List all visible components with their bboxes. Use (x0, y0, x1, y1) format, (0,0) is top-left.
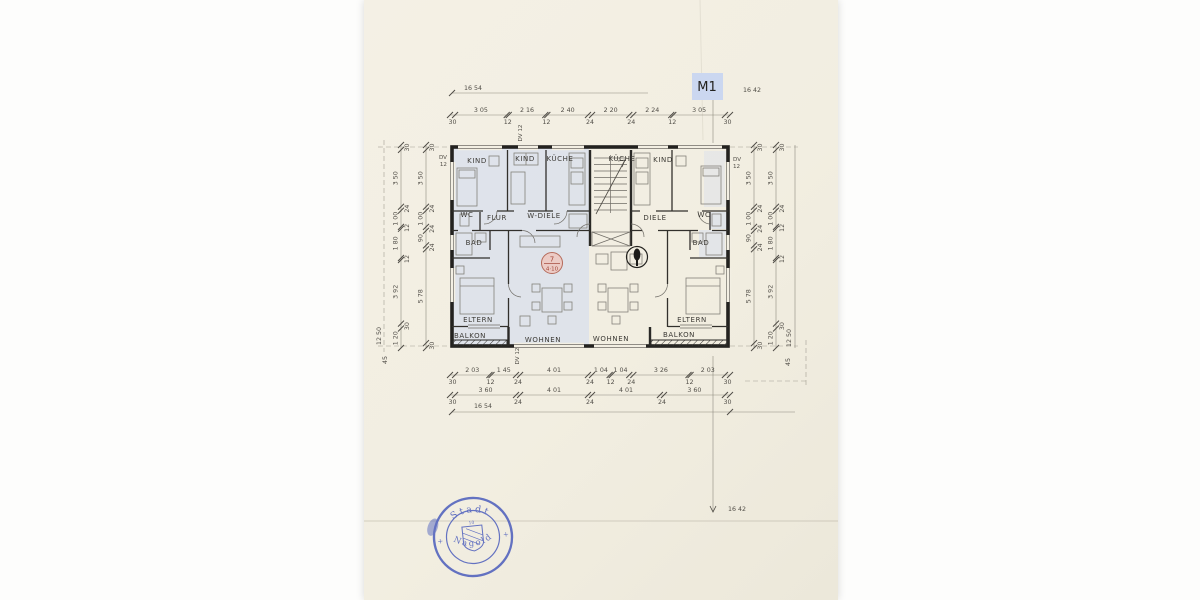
room-label-diele-right: DIELE (643, 214, 666, 222)
svg-text:24: 24 (586, 399, 594, 406)
svg-text:3 50: 3 50 (393, 171, 400, 185)
svg-text:3 50: 3 50 (746, 171, 753, 185)
room-label-wdiele-left: W-DIELE (527, 212, 561, 220)
svg-text:24: 24 (404, 205, 411, 213)
city-stamp: Stadt Nagold + + 10 (422, 494, 516, 581)
svg-text:Stadt: Stadt (448, 502, 493, 523)
room-label-balkon-left: BALKON (454, 332, 486, 340)
room-label-kueche-left: KÜCHE (546, 154, 573, 163)
svg-text:1 00: 1 00 (393, 212, 400, 226)
dim-side-edge-left: 45 (382, 356, 389, 364)
svg-text:24: 24 (627, 379, 635, 386)
dim-side-edge-right: 45 (785, 358, 792, 366)
room-label-kueche-right: KÜCHE (608, 154, 635, 163)
svg-text:Nagold: Nagold (451, 531, 496, 551)
svg-text:24: 24 (757, 243, 764, 251)
room-label-kind2-left: KIND (515, 155, 535, 163)
svg-text:30: 30 (779, 143, 786, 151)
dv-label-right: DV (733, 157, 741, 163)
svg-text:24: 24 (757, 225, 764, 233)
svg-text:3 50: 3 50 (768, 171, 775, 185)
svg-text:3 50: 3 50 (418, 171, 425, 185)
svg-text:3 92: 3 92 (393, 285, 400, 299)
stamp-top-text: Stadt (448, 502, 493, 523)
svg-text:30: 30 (429, 342, 436, 350)
svg-text:4 01: 4 01 (547, 387, 561, 394)
svg-text:3 05: 3 05 (692, 107, 706, 114)
svg-text:1 00: 1 00 (768, 212, 775, 226)
svg-text:24: 24 (429, 205, 436, 213)
room-label-bad-right: BAD (693, 239, 710, 247)
svg-text:30: 30 (449, 379, 457, 386)
room-label-wc-left: WC (460, 211, 473, 219)
plan-scale-label: M1 (697, 80, 717, 95)
scanned-floor-plan-page: { "plan_label": "M1", "colors": { "paper… (0, 0, 1200, 600)
room-label-eltern-right: ELTERN (677, 316, 707, 324)
unit-number-left: 7 (550, 256, 554, 264)
svg-text:1 00: 1 00 (418, 212, 425, 226)
svg-text:3 60: 3 60 (479, 387, 493, 394)
room-label-eltern-left: ELTERN (463, 316, 493, 324)
svg-text:1 80: 1 80 (768, 236, 775, 250)
svg-text:2 20: 2 20 (604, 107, 618, 114)
svg-text:24: 24 (779, 205, 786, 213)
dim-chain-bottom-1: 302 03121 45244 01241 04121 04243 26122 … (447, 367, 733, 386)
floor-plan-drawing: KIND KIND KÜCHE WC FLUR W-DIELE BAD ELTE… (0, 0, 1200, 600)
room-label-wc-right: WC (697, 211, 710, 219)
svg-text:5 78: 5 78 (746, 289, 753, 303)
dim-chain-left-outer: 303 50241 00121 80123 92301 20 (393, 142, 412, 351)
dim-bottom-overall-right: 16 42 (728, 506, 746, 513)
svg-text:3 26: 3 26 (654, 367, 668, 374)
construction-lines (378, 140, 806, 386)
svg-text:1 45: 1 45 (497, 367, 511, 374)
svg-text:12: 12 (440, 162, 447, 168)
svg-text:30: 30 (404, 143, 411, 151)
svg-text:30: 30 (449, 399, 457, 406)
dim-bottom-overall: 16 54 (474, 403, 492, 410)
svg-text:2 24: 2 24 (645, 107, 659, 114)
dim-top-overall-left: 16 54 (464, 85, 482, 92)
svg-text:30: 30 (429, 143, 436, 151)
room-label-kind-right: KIND (653, 156, 673, 164)
svg-text:30: 30 (723, 399, 731, 406)
dv-label-bottom-center: DV 12 (515, 348, 521, 365)
room-label-wohnen-right: WOHNEN (593, 335, 629, 343)
svg-text:1 80: 1 80 (393, 236, 400, 250)
svg-text:24: 24 (514, 399, 522, 406)
svg-text:12: 12 (542, 119, 550, 126)
dim-chain-right-inner: 303 50241 002490245 7830 (746, 142, 765, 351)
svg-text:12: 12 (668, 119, 676, 126)
svg-text:30: 30 (757, 342, 764, 350)
dim-chain-left-inner: 303 50241 002490245 7830 (418, 142, 437, 351)
svg-text:12: 12 (779, 255, 786, 263)
svg-text:30: 30 (404, 322, 411, 330)
room-label-flur-left: FLUR (487, 214, 507, 222)
dim-side-overall-right: 12 50 (786, 329, 793, 347)
stamp-bottom-text: Nagold (451, 531, 496, 551)
unit-marker-left: 7 4·10 (542, 253, 563, 274)
svg-text:1 20: 1 20 (768, 331, 775, 345)
dim-top-overall-right: 16 42 (743, 87, 761, 94)
svg-text:2 03: 2 03 (465, 367, 479, 374)
dim-side-overall-left: 12 50 (376, 327, 383, 345)
svg-text:24: 24 (627, 119, 635, 126)
stamp-right-mark: + (503, 530, 510, 539)
svg-text:5 78: 5 78 (418, 289, 425, 303)
stamp-left-mark: + (437, 537, 444, 546)
svg-text:12: 12 (686, 379, 694, 386)
svg-text:12: 12 (404, 224, 411, 232)
unit-marker-figure (634, 249, 641, 261)
svg-text:30: 30 (757, 143, 764, 151)
dim-chain-right-outer: 303 50241 00121 80123 92301 20 (768, 142, 787, 351)
svg-text:12: 12 (404, 255, 411, 263)
svg-text:12: 12 (504, 119, 512, 126)
svg-text:3 92: 3 92 (768, 285, 775, 299)
svg-text:90: 90 (746, 234, 753, 242)
svg-text:2 03: 2 03 (701, 367, 715, 374)
dv-label-left: DV (439, 155, 447, 161)
svg-text:24: 24 (586, 379, 594, 386)
svg-text:30: 30 (723, 379, 731, 386)
svg-text:30: 30 (723, 119, 731, 126)
svg-text:24: 24 (429, 225, 436, 233)
svg-text:12: 12 (486, 379, 494, 386)
svg-text:4 01: 4 01 (547, 367, 561, 374)
svg-text:90: 90 (418, 234, 425, 242)
svg-text:30: 30 (779, 322, 786, 330)
room-label-balkon-right: BALKON (663, 331, 695, 339)
svg-text:3 60: 3 60 (687, 387, 701, 394)
staircase (592, 155, 630, 246)
dim-chain-top: 303 05122 16122 40242 20242 24123 0530 (447, 107, 733, 126)
room-label-bad-left: BAD (466, 239, 483, 247)
svg-text:24: 24 (586, 119, 594, 126)
svg-text:1 00: 1 00 (746, 212, 753, 226)
svg-text:3 05: 3 05 (474, 107, 488, 114)
svg-text:2 40: 2 40 (561, 107, 575, 114)
svg-text:1 04: 1 04 (594, 367, 608, 374)
svg-text:12: 12 (607, 379, 615, 386)
room-label-kind1-left: KIND (467, 157, 487, 165)
svg-text:24: 24 (514, 379, 522, 386)
svg-text:30: 30 (449, 119, 457, 126)
svg-text:24: 24 (658, 399, 666, 406)
svg-text:4 01: 4 01 (619, 387, 633, 394)
svg-text:2 16: 2 16 (520, 107, 534, 114)
svg-text:24: 24 (429, 243, 436, 251)
dv-label-top-center: DV 12 (518, 125, 524, 142)
svg-text:1 04: 1 04 (613, 367, 627, 374)
m1-label-box: M1 (692, 73, 723, 100)
svg-text:12: 12 (733, 164, 740, 170)
paper-creases (364, 0, 838, 521)
room-label-wohnen-left: WOHNEN (525, 336, 561, 344)
unit-sub-left: 4·10 (546, 267, 559, 273)
svg-text:1 20: 1 20 (393, 331, 400, 345)
svg-text:12: 12 (779, 224, 786, 232)
svg-text:24: 24 (757, 205, 764, 213)
